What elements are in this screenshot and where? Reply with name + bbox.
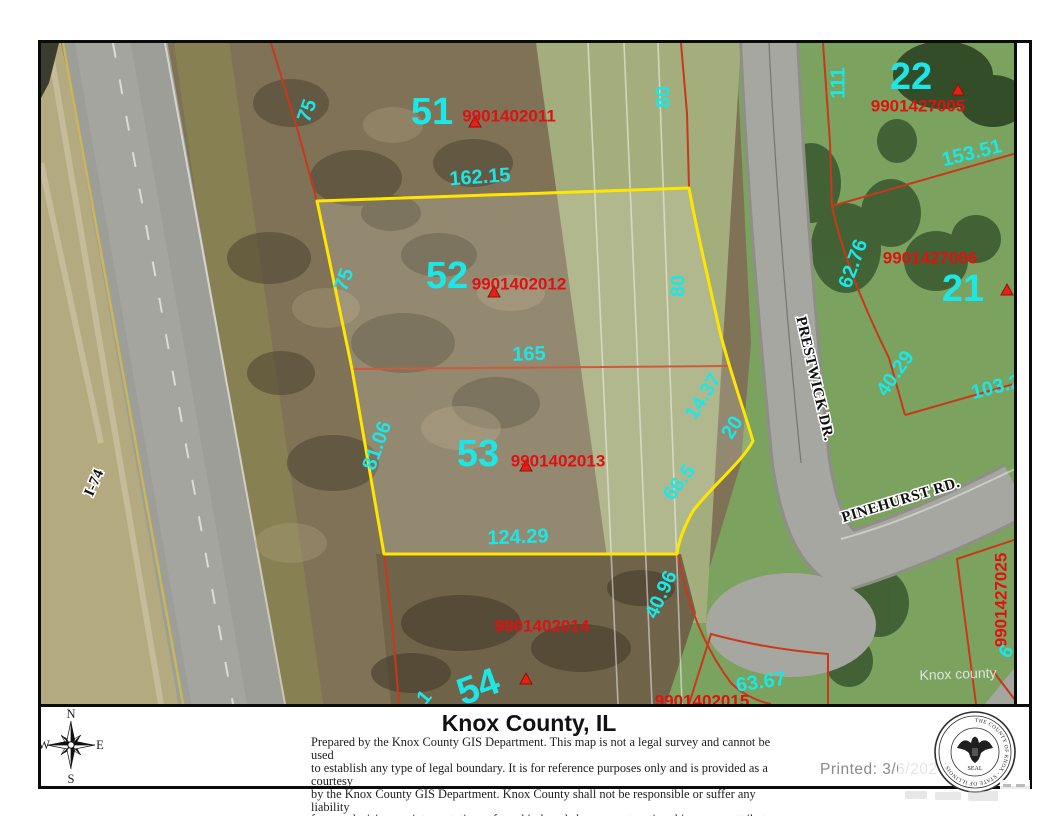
page-title: Knox County, IL — [41, 710, 1017, 737]
disclaimer-line-1: Prepared by the Knox County GIS Departme… — [311, 736, 781, 762]
cutoff-smudge — [905, 791, 927, 799]
footer: N S W E Knox County, IL Prepared by the … — [41, 707, 1017, 786]
parcel-52-label: 52 — [426, 255, 468, 297]
parcel-id-9901427005: 9901427005 — [871, 96, 966, 115]
compass-w-label: W — [41, 738, 50, 752]
parcel-id-9901402012: 9901402012 — [472, 274, 567, 293]
dim-162-15: 162.15 — [449, 164, 512, 190]
cutoff-smudge — [935, 792, 961, 800]
map-layers: 51 52 53 54 22 21 9901402011 9901402012 … — [41, 43, 1014, 704]
disclaimer-text: Prepared by the Knox County GIS Departme… — [311, 736, 781, 816]
dim-165: 165 — [512, 343, 546, 366]
dim-111: 111 — [827, 67, 849, 98]
gis-print-page: 51 52 53 54 22 21 9901402011 9901402012 … — [0, 0, 1056, 816]
parcel-id-9901402013: 9901402013 — [511, 451, 606, 470]
border-fade-dash — [1003, 784, 1011, 787]
parcel-51-label: 51 — [411, 91, 453, 133]
dim-124-29: 124.29 — [487, 525, 549, 549]
disclaimer-line-3: by the Knox County GIS Department. Knox … — [311, 788, 781, 814]
map-canvas: 51 52 53 54 22 21 9901402011 9901402012 … — [41, 43, 1017, 704]
highlighted-parcel-outline — [317, 188, 753, 554]
disclaimer-line-2: to establish any type of legal boundary.… — [311, 762, 781, 788]
seal-bottom-label: SEAL — [968, 766, 983, 772]
parcel-id-9901402014: 9901402014 — [495, 616, 590, 635]
parcel-id-9901402011: 9901402011 — [462, 106, 556, 125]
border-white-overlay — [1000, 780, 1030, 796]
cutoff-smudge — [968, 791, 998, 801]
dim-80-top: 80 — [652, 86, 674, 108]
parcel-22-label: 22 — [890, 56, 932, 98]
map-watermark: Knox county — [919, 664, 997, 683]
parcel-id-9901427025: 9901427025 — [991, 553, 1010, 648]
compass-e-label: E — [96, 738, 104, 752]
parcel-id-9901402015: 9901402015 — [655, 691, 750, 704]
parcel-id-9901427006: 9901427006 — [883, 248, 978, 267]
compass-star — [47, 721, 95, 769]
compass-s-label: S — [68, 772, 75, 786]
parcel-53-label: 53 — [457, 433, 499, 475]
border-fade-dash — [1016, 784, 1025, 787]
compass-n-label: N — [66, 707, 75, 721]
compass-rose: N S W E — [41, 707, 151, 787]
dim-80-mid: 80 — [667, 275, 689, 297]
parcel-21-label: 21 — [942, 268, 984, 310]
